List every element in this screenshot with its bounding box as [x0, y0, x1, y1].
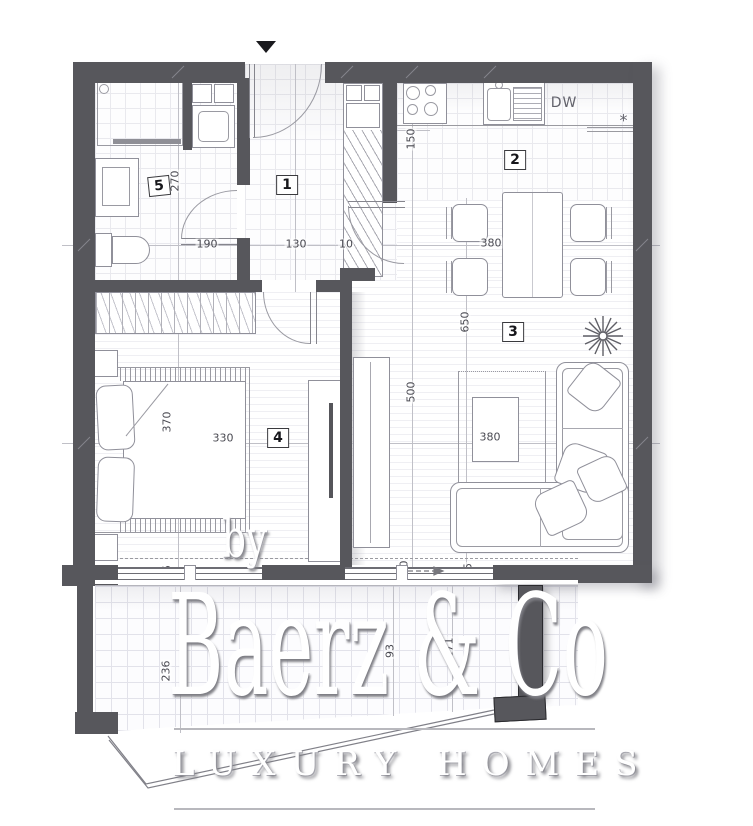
wall	[73, 62, 95, 565]
dining-chair	[452, 258, 488, 296]
washing-machine-shelf	[214, 84, 234, 103]
toilet-tank	[95, 233, 112, 267]
dimension-label: 190	[196, 239, 219, 250]
stove-burner	[424, 102, 438, 116]
entry-direction-arrow-icon	[256, 41, 276, 53]
bedroom-door-leaf	[310, 292, 317, 344]
mattress	[123, 381, 246, 519]
bed-headband	[120, 368, 246, 381]
dimension-label: 10	[338, 239, 354, 250]
dimension-label: 500	[406, 381, 417, 404]
corner-mark: *	[620, 111, 629, 130]
floorplan: DW *	[0, 0, 753, 826]
washing-machine-shelf	[192, 84, 212, 103]
tv-unit-living	[353, 357, 390, 548]
watermark-rule-top	[174, 728, 595, 730]
tv-unit-bedroom	[308, 380, 342, 562]
kitchen-sink-bowl	[487, 88, 511, 121]
wall	[633, 62, 652, 583]
room-number-label: 1	[276, 175, 298, 195]
chair-backrest	[606, 207, 612, 239]
chair-backrest	[446, 207, 452, 239]
wall	[340, 268, 375, 281]
kitchen-sink-drainer	[513, 87, 542, 121]
chair-backrest	[446, 261, 452, 293]
closet-shoe-box	[346, 85, 362, 101]
shower-glass	[113, 139, 181, 144]
dimension-label: 650	[460, 311, 471, 334]
room-number-label: 5	[147, 175, 171, 197]
closet-shoe-box	[364, 85, 380, 101]
dimension-label: 330	[212, 433, 235, 444]
washing-machine-drum	[198, 111, 229, 142]
room-number-label: 3	[502, 322, 524, 342]
dimension-label: 380	[479, 432, 502, 443]
room-number-label: 4	[267, 428, 289, 448]
wall	[340, 281, 352, 570]
wardrobe	[95, 292, 256, 334]
sofa-cushion-divider	[562, 428, 623, 429]
coffee-table	[472, 397, 519, 462]
wall	[75, 280, 262, 292]
dishwasher-label: DW	[551, 95, 578, 111]
watermark-rule-bottom	[174, 808, 595, 810]
dining-chair	[570, 204, 606, 242]
dimension-label: 270	[170, 170, 181, 193]
bed-pillow	[96, 456, 135, 522]
stove-burner	[406, 86, 420, 100]
bed-pillow	[95, 384, 135, 451]
terrace-wall	[75, 712, 118, 734]
wall	[325, 62, 652, 83]
stove-burner	[407, 104, 418, 115]
wall	[183, 78, 192, 150]
dimension-label: 370	[162, 411, 173, 434]
dimension-label: 130	[285, 239, 308, 250]
chair-backrest	[606, 261, 612, 293]
closet-shelf	[346, 103, 380, 128]
shower-drain-icon	[99, 84, 109, 94]
wall	[383, 62, 397, 203]
dimension-label: 150	[406, 128, 417, 151]
toilet-bowl	[112, 236, 150, 264]
tv-unit-living-line	[370, 362, 371, 543]
dining-table-leaf-line	[532, 193, 533, 297]
dining-chair	[570, 258, 606, 296]
watermark-tagline: LUXURY HOMES	[172, 747, 653, 781]
watermark-by: by	[222, 514, 267, 566]
tv-screen	[329, 403, 333, 498]
shower	[97, 80, 183, 146]
terrace-wall	[77, 586, 93, 714]
wall	[73, 62, 245, 83]
dimension-label: 380	[480, 238, 503, 249]
room-number-label: 2	[504, 150, 526, 170]
watermark-brand: Baerz & Co	[168, 577, 608, 717]
bathroom-sink-basin	[102, 167, 130, 206]
stove-burner	[425, 85, 436, 96]
